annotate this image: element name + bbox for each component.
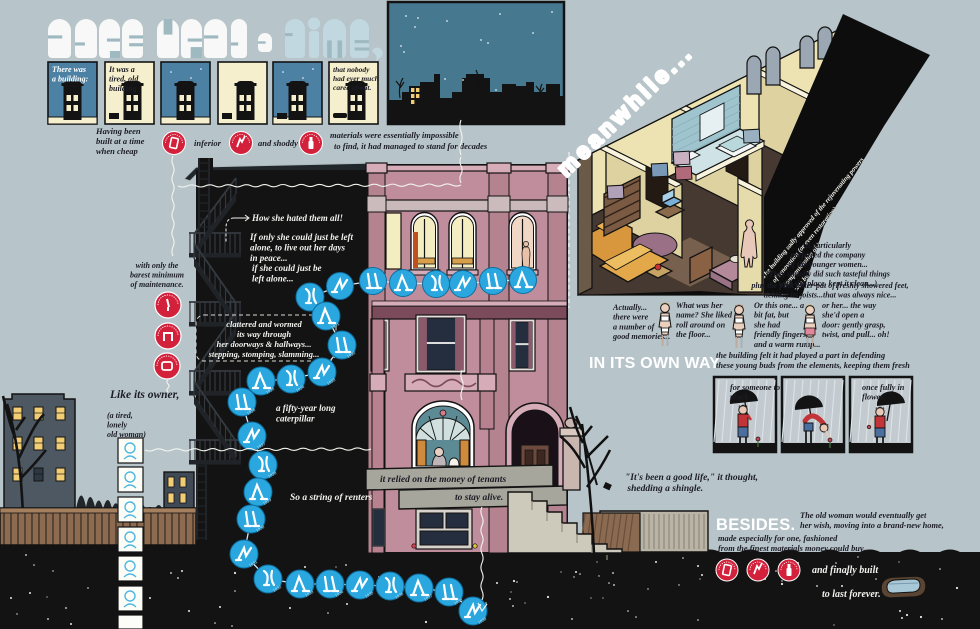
svg-text:to last forever.: to last forever. [822, 589, 881, 600]
svg-text:and finally built: and finally built [812, 565, 879, 576]
svg-text:it relied on the money of tena: it relied on the money of tenants [380, 475, 506, 485]
svg-text:BESIDES.: BESIDES. [716, 516, 795, 534]
svg-text:There wasa building:: There wasa building: [52, 65, 89, 84]
svg-text:The old woman would eventually: The old woman would eventually gether wi… [800, 511, 944, 530]
svg-text:So a string of renters: So a string of renters [290, 493, 373, 503]
svg-text:to find, it had managed to sta: to find, it had managed to stand for dec… [334, 141, 488, 151]
svg-text:with only thebarest minimumof: with only thebarest minimumof maintenanc… [130, 261, 184, 289]
svg-text:Like its owner,: Like its owner, [109, 389, 179, 401]
svg-text:and shoddy: and shoddy [258, 138, 298, 148]
svg-text:Having beenbuilt at a timewhen: Having beenbuilt at a timewhen cheap [95, 126, 145, 156]
svg-text:How she hated them all!: How she hated them all! [251, 213, 343, 223]
svg-text:It was atired, oldbuilding: It was atired, oldbuilding [108, 65, 139, 93]
svg-text:the building felt it had playe: the building felt it had played a part i… [716, 351, 910, 370]
svg-text:inferior: inferior [194, 138, 222, 148]
svg-text:plus the pink pitter-pat of fr: plus the pink pitter-pat of freshly show… [750, 281, 908, 300]
svg-text:to stay alive.: to stay alive. [455, 493, 503, 503]
svg-text:IN ITS OWN WAY: IN ITS OWN WAY [589, 355, 720, 372]
svg-text:materials were essentially imp: materials were essentially impossible [330, 130, 459, 140]
